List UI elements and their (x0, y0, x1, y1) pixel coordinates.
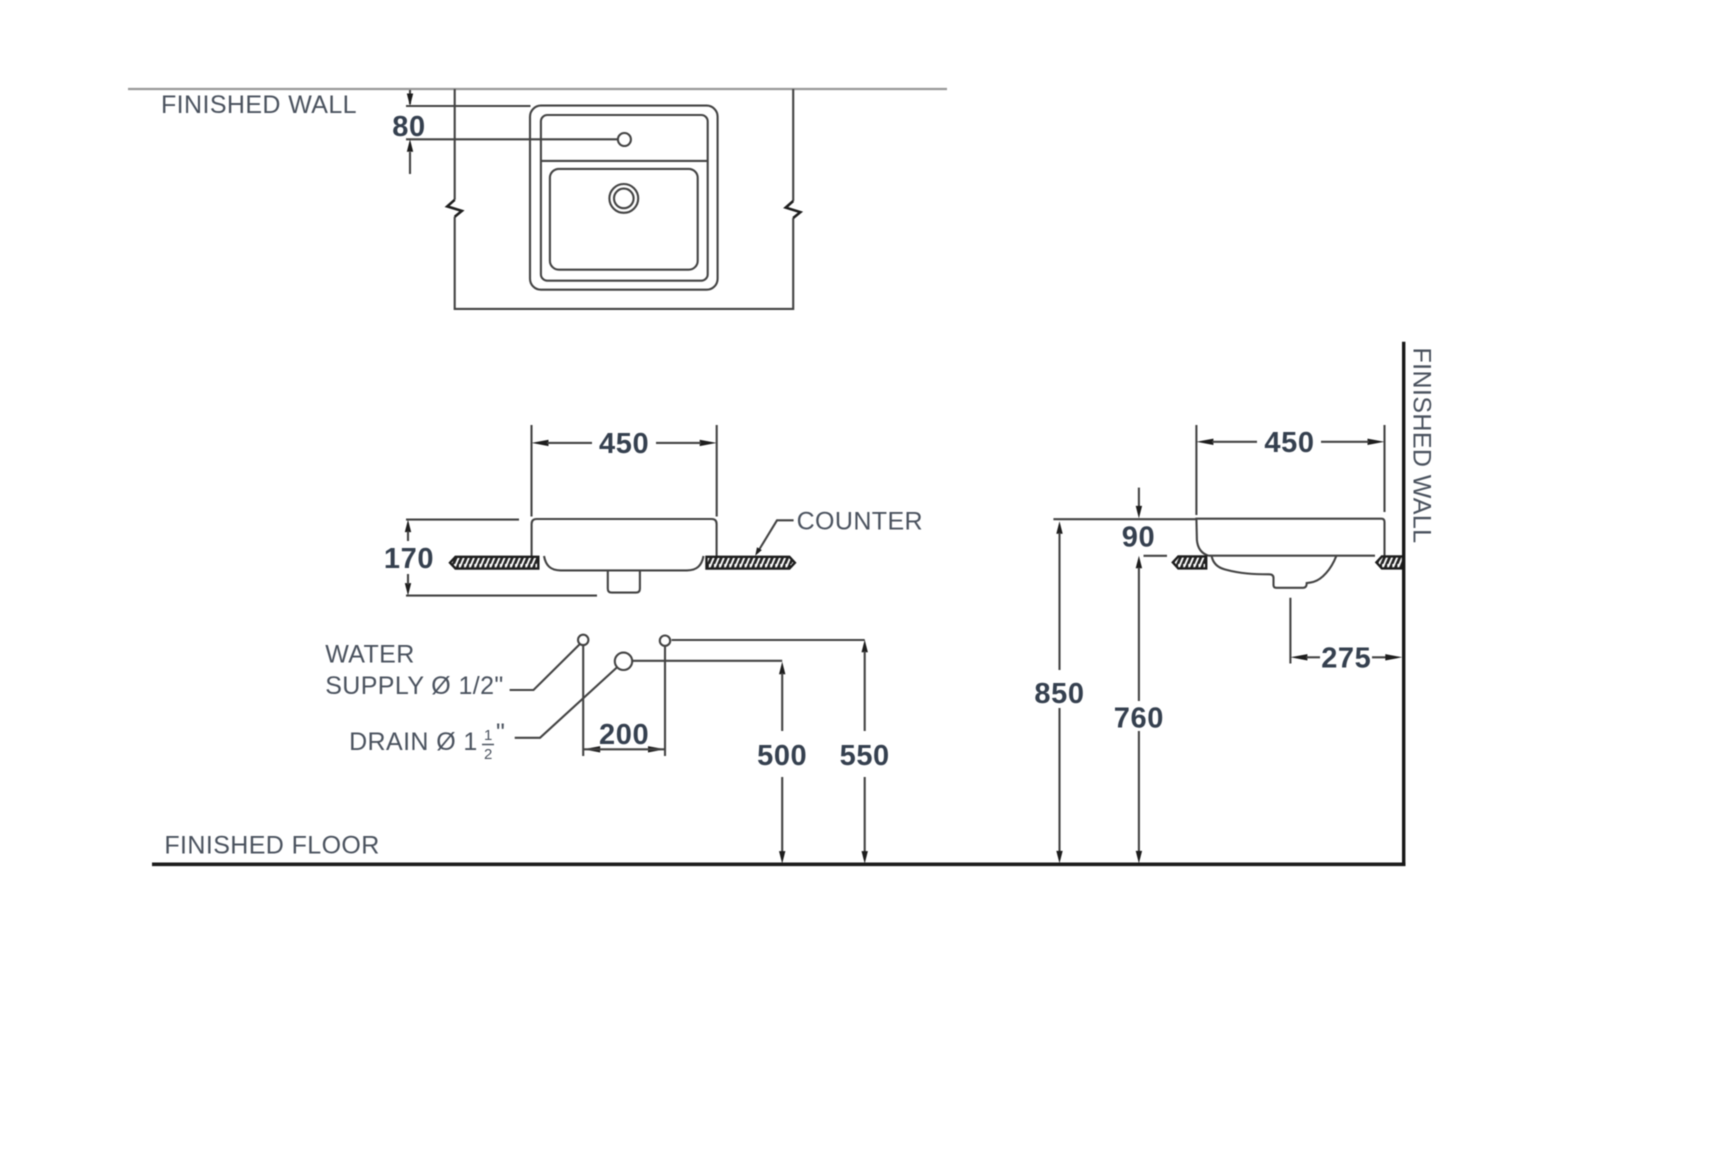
svg-text:200: 200 (599, 719, 649, 751)
svg-text:275: 275 (1321, 643, 1371, 675)
svg-text:DRAIN Ø 1: DRAIN Ø 1 (349, 728, 478, 756)
svg-text:550: 550 (840, 740, 890, 772)
svg-text:FINISHED FLOOR: FINISHED FLOOR (164, 832, 379, 860)
svg-text:80: 80 (392, 111, 425, 143)
svg-text:850: 850 (1034, 678, 1084, 710)
svg-text:COUNTER: COUNTER (797, 508, 923, 536)
svg-text:450: 450 (599, 428, 649, 460)
svg-text:90: 90 (1122, 522, 1155, 554)
svg-text:450: 450 (1264, 427, 1314, 459)
svg-text:760: 760 (1114, 703, 1164, 735)
svg-text:WATER: WATER (325, 641, 415, 669)
svg-text:2: 2 (484, 746, 492, 763)
svg-text:500: 500 (757, 740, 807, 772)
svg-text:": " (496, 719, 505, 747)
svg-text:170: 170 (384, 543, 434, 575)
svg-text:FINISHED WALL: FINISHED WALL (1408, 348, 1436, 544)
svg-text:FINISHED WALL: FINISHED WALL (161, 91, 357, 119)
svg-text:1: 1 (484, 727, 492, 744)
svg-text:SUPPLY Ø 1/2": SUPPLY Ø 1/2" (325, 672, 504, 700)
